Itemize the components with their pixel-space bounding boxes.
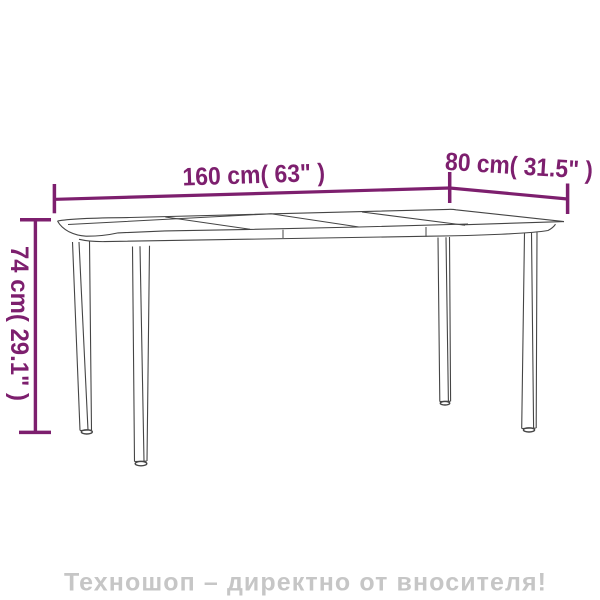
- svg-text:74 cm( 29.1" ): 74 cm( 29.1" ): [5, 246, 33, 401]
- svg-text:160 cm( 63" ): 160 cm( 63" ): [182, 159, 325, 192]
- svg-text:Техношоп – директно от вносите: Техношоп – директно от вносителя!: [64, 569, 546, 597]
